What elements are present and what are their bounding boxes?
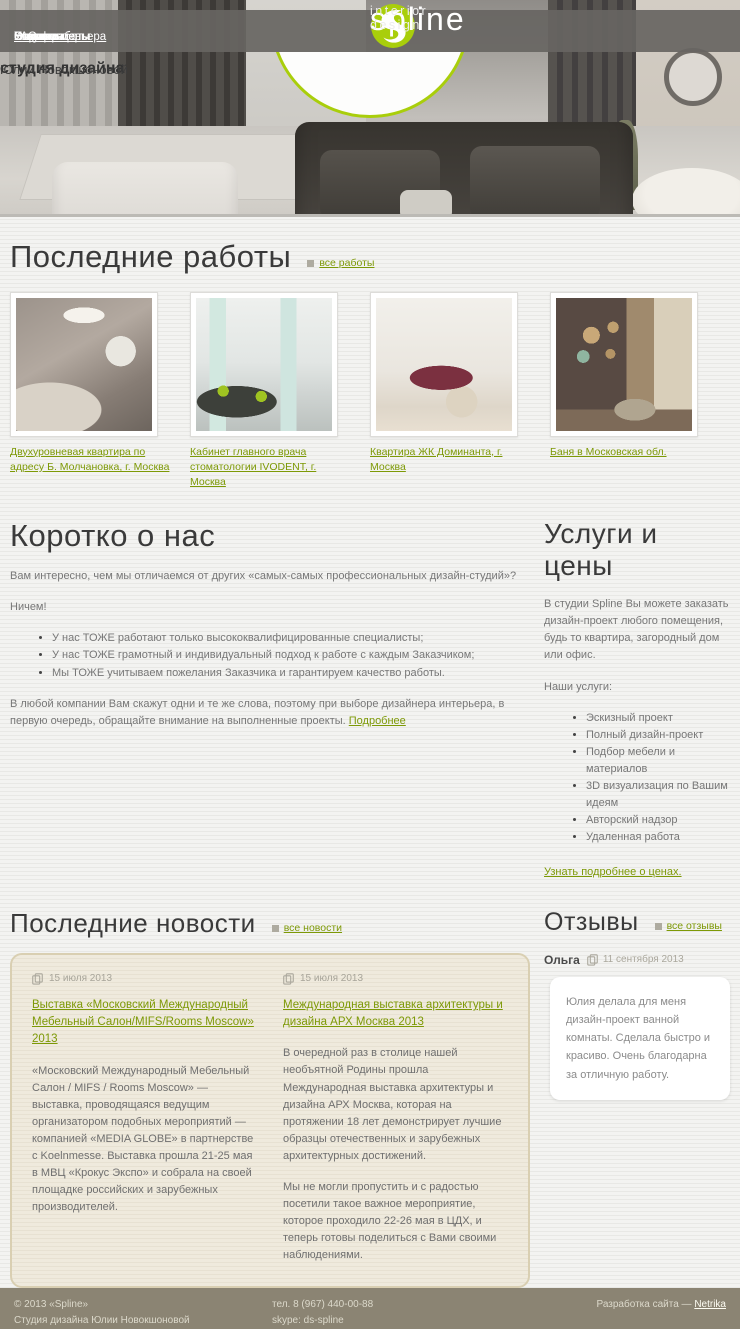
nav-item-contacts[interactable]: Контакты (14, 31, 64, 43)
hero-header: О нас Услуги и цены FAQ Этапы работы Пор… (0, 0, 740, 217)
news-item-text: «Московский Международный Мебельный Сало… (32, 1063, 257, 1216)
work-card (10, 292, 158, 437)
about-bullet: У нас ТОЖЕ грамотный и индивидуальный по… (52, 647, 530, 664)
about-nothing: Ничем! (10, 599, 530, 616)
news-date: 15 июля 2013 (283, 973, 508, 985)
footer-copyright-block: © 2013 «Spline» Студия дизайна Юлии Ново… (14, 1297, 272, 1329)
latest-works-section: Последние работы все работы Двухуровнева… (10, 239, 730, 491)
review-date: 11 сентября 2013 (587, 954, 684, 966)
review-bubble: Юлия делала для меня дизайн-проект ванно… (550, 977, 730, 1100)
news-section: Последние новости все новости 15 (10, 908, 530, 1288)
footer-copyright: © 2013 «Spline» (14, 1297, 272, 1313)
pages-icon (587, 954, 598, 966)
service-item: Эскизный проект (586, 710, 730, 727)
about-title: Коротко о нас (10, 518, 530, 554)
reviews-section: Отзывы все отзывы Ольга (544, 908, 730, 1288)
footer: © 2013 «Spline» Студия дизайна Юлии Ново… (0, 1288, 740, 1329)
news-box: 15 июля 2013 Выставка «Московский Междун… (10, 953, 530, 1288)
review-text: Юлия делала для меня дизайн-проект ванно… (566, 993, 714, 1084)
prices-link[interactable]: Узнать подробнее о ценах. (544, 866, 682, 878)
badge-line-2: Юлии Новокшоновой (0, 62, 128, 77)
about-more-link[interactable]: Подробнее (349, 715, 406, 727)
work-caption-link[interactable]: Квартира ЖК Доминанта, г. Москва (370, 445, 530, 475)
work-item: Кабинет главного врача стоматологии IVOD… (190, 292, 338, 491)
news-item-text: В очередной раз в столице нашей необъятн… (283, 1045, 508, 1164)
about-outro: В любой компании Вам скажут одни и те же… (10, 696, 530, 730)
main-content: Последние работы все работы Двухуровнева… (0, 217, 740, 1288)
hero-sofa-cushion (470, 146, 600, 217)
all-reviews-link[interactable]: все отзывы (655, 920, 722, 932)
square-bullet-icon (655, 923, 662, 930)
work-item: Двухуровневая квартира по адресу Б. Молч… (10, 292, 158, 491)
footer-dev-label: Разработка сайта — (597, 1299, 695, 1310)
hero-sofa-pillow (400, 190, 452, 217)
work-card (370, 292, 518, 437)
hero-sofa-white (52, 162, 238, 217)
footer-contacts-block: тел. 8 (967) 440-00-88 skype: ds-spline (272, 1297, 597, 1329)
pages-icon (32, 973, 43, 985)
news-item-title-link[interactable]: Выставка «Московский Международный Мебел… (32, 997, 257, 1049)
news-item-text: Мы не могли пропустить и с радостью посе… (283, 1179, 508, 1264)
about-section: Коротко о нас Вам интересно, чем мы отли… (10, 518, 530, 880)
footer-developer-block: Разработка сайта — Netrika (597, 1297, 727, 1329)
work-card (550, 292, 698, 437)
about-bullets: У нас ТОЖЕ работают только высококвалифи… (52, 630, 530, 681)
services-list-label: Наши услуги: (544, 679, 730, 696)
work-thumbnail-bedroom[interactable] (16, 298, 152, 431)
pages-icon (283, 973, 294, 985)
about-bullet: У нас ТОЖЕ работают только высококвалифи… (52, 630, 530, 647)
work-thumbnail-sauna[interactable] (556, 298, 692, 431)
all-news-link[interactable]: все новости (272, 922, 342, 934)
square-bullet-icon (272, 925, 279, 932)
service-item: Полный дизайн-проект (586, 727, 730, 744)
all-works-link[interactable]: все работы (307, 257, 374, 269)
latest-works-title: Последние работы (10, 239, 291, 275)
logo-tagline: interior design (370, 4, 428, 32)
footer-phone: тел. 8 (967) 440-00-88 (272, 1297, 597, 1313)
service-item: Удаленная работа (586, 829, 730, 846)
news-item-title-link[interactable]: Международная выставка архитектуры и диз… (283, 997, 508, 1032)
news-date: 15 июля 2013 (32, 973, 257, 985)
footer-dev-link[interactable]: Netrika (694, 1299, 726, 1310)
news-item: 15 июля 2013 Выставка «Московский Междун… (32, 973, 257, 1264)
news-title: Последние новости (10, 908, 256, 939)
service-item: Подбор мебели и материалов (586, 744, 730, 778)
services-section: Услуги и цены В студии Spline Вы можете … (544, 518, 730, 880)
services-intro: В студии Spline Вы можете заказать дизай… (544, 596, 730, 664)
service-item: 3D визуализация по Вашим идеям (586, 778, 730, 812)
footer-skype: skype: ds-spline (272, 1313, 597, 1329)
work-caption-link[interactable]: Кабинет главного врача стоматологии IVOD… (190, 445, 350, 491)
footer-studio: Студия дизайна Юлии Новокшоновой (14, 1313, 272, 1329)
news-item: 15 июля 2013 Международная выставка архи… (283, 973, 508, 1264)
reviews-title: Отзывы (544, 908, 639, 937)
work-item: Квартира ЖК Доминанта, г. Москва (370, 292, 518, 491)
services-list: Эскизный проект Полный дизайн-проект Под… (586, 710, 730, 846)
review-author: Ольга (544, 953, 580, 967)
work-thumbnail-office[interactable] (196, 298, 332, 431)
work-item: Баня в Московская обл. (550, 292, 698, 491)
work-caption-link[interactable]: Двухуровневая квартира по адресу Б. Молч… (10, 445, 170, 475)
about-bullet: Мы ТОЖЕ учитываем пожелания Заказчика и … (52, 665, 530, 682)
work-caption-link[interactable]: Баня в Московская обл. (550, 445, 710, 460)
work-thumbnail-apartment[interactable] (376, 298, 512, 431)
review-item: Ольга 11 сентября 2013 Юлия делала для м… (544, 953, 730, 1100)
about-intro: Вам интересно, чем мы отличаемся от друг… (10, 568, 530, 585)
square-bullet-icon (307, 260, 314, 267)
page: О нас Услуги и цены FAQ Этапы работы Пор… (0, 0, 740, 1329)
services-title: Услуги и цены (544, 518, 730, 582)
service-item: Авторский надзор (586, 812, 730, 829)
works-grid: Двухуровневая квартира по адресу Б. Молч… (10, 292, 730, 491)
work-card (190, 292, 338, 437)
